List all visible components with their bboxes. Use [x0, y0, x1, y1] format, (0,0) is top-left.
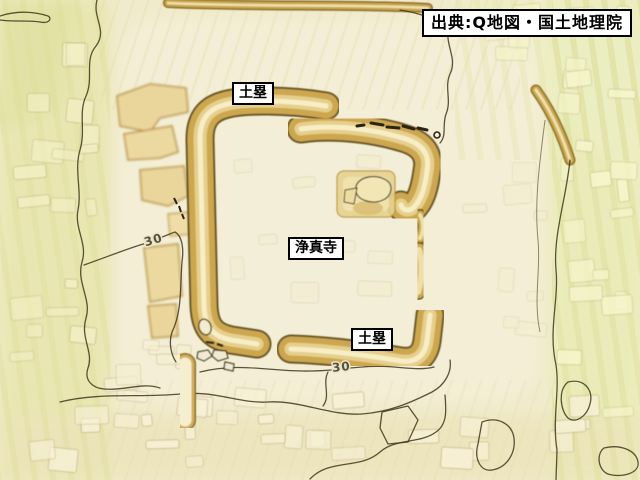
- label-dorui-bottom: 土塁: [351, 328, 393, 351]
- central-mounds: [337, 171, 395, 217]
- label-dorui-top: 土塁: [232, 82, 274, 105]
- map-source-attribution: 出典:Q地図・国土地理院: [422, 9, 632, 37]
- rampart-east-fragments: [418, 215, 423, 292]
- contour-label-30-south: 30: [331, 359, 351, 375]
- label-joshinji-temple: 浄真寺: [288, 237, 344, 260]
- relief-map-view: 30 30 土塁 浄真寺 土塁 出典:Q地図・国土地理院: [0, 0, 640, 480]
